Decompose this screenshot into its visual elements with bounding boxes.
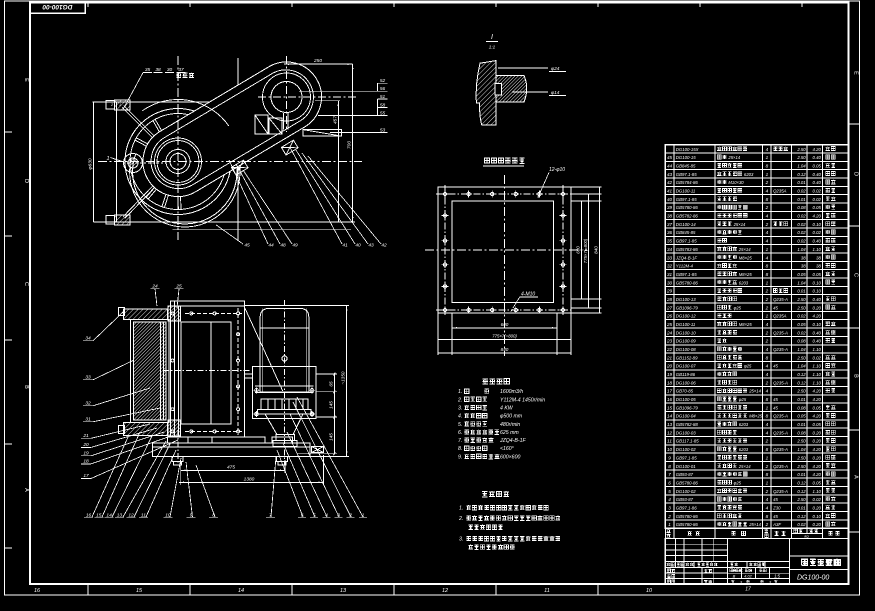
svg-text:1.04: 1.04 (797, 247, 806, 252)
svg-text:2: 2 (765, 205, 769, 210)
svg-text:26: 26 (666, 314, 673, 319)
svg-text:B: B (733, 573, 736, 578)
svg-text:0.20: 0.20 (813, 455, 822, 460)
svg-text:GB70-85: GB70-85 (676, 389, 694, 394)
svg-text:2.: 2. (458, 516, 463, 522)
svg-text:DG100-10: DG100-10 (676, 330, 696, 335)
svg-text:0.10: 0.10 (813, 322, 822, 327)
svg-text:0.12: 0.12 (797, 514, 806, 519)
svg-text:10: 10 (646, 588, 653, 594)
svg-text:φ500 mm: φ500 mm (500, 414, 523, 420)
svg-text:34: 34 (667, 247, 673, 252)
svg-text:145: 145 (328, 401, 333, 409)
svg-text:13: 13 (340, 588, 347, 594)
svg-text:2.50: 2.50 (796, 464, 806, 469)
svg-text:4-M10: 4-M10 (521, 292, 535, 298)
svg-text:0.12: 0.12 (797, 372, 806, 377)
svg-text:Q235-A: Q235-A (773, 297, 788, 302)
svg-text:0.05: 0.05 (813, 272, 822, 277)
svg-text:25×14: 25×14 (748, 389, 761, 394)
svg-text:JZQ4-B-1F: JZQ4-B-1F (499, 438, 526, 444)
svg-text:1.10: 1.10 (813, 247, 822, 252)
svg-text:0.05: 0.05 (813, 422, 822, 427)
svg-text:45: 45 (773, 497, 778, 502)
svg-text:5.: 5. (458, 422, 462, 428)
svg-text:2.50: 2.50 (796, 389, 806, 394)
svg-text:7: 7 (668, 472, 671, 477)
svg-text:1.10: 1.10 (813, 380, 822, 385)
svg-text:GB1096-79: GB1096-79 (676, 305, 699, 310)
svg-text:4: 4 (766, 255, 769, 260)
svg-text:0.01: 0.01 (797, 197, 806, 202)
svg-text:0.02: 0.02 (813, 355, 822, 360)
svg-text:1:5: 1:5 (774, 573, 780, 578)
svg-text:4: 4 (766, 372, 769, 377)
svg-text:0.20: 0.20 (813, 506, 822, 511)
svg-text:Z30: Z30 (772, 506, 781, 511)
svg-text:0.10: 0.10 (813, 280, 822, 285)
svg-text:23: 23 (666, 339, 673, 344)
svg-text:Y112M-4: Y112M-4 (676, 264, 694, 269)
svg-text:0.05: 0.05 (813, 164, 822, 169)
svg-text:3.: 3. (459, 537, 463, 543)
svg-text:Q235-A: Q235-A (773, 330, 788, 335)
svg-text:GB5783-86: GB5783-86 (676, 247, 699, 252)
svg-text:36: 36 (667, 230, 673, 235)
svg-text:2.50: 2.50 (796, 355, 806, 360)
svg-text:2.50: 2.50 (796, 497, 806, 502)
svg-text:GB5780-86: GB5780-86 (676, 280, 699, 285)
svg-text:0.05: 0.05 (797, 414, 806, 419)
svg-text:38: 38 (816, 255, 821, 260)
svg-text:1.: 1. (458, 389, 462, 395)
svg-text:DG100-00: DG100-00 (42, 3, 72, 10)
svg-text:0.02: 0.02 (797, 230, 806, 235)
svg-text:8: 8 (766, 447, 769, 452)
svg-text:3: 3 (668, 506, 671, 511)
svg-text:DG100-15X: DG100-15X (676, 147, 699, 152)
svg-text:1.04: 1.04 (797, 347, 806, 352)
svg-text:44: 44 (268, 243, 274, 249)
svg-text:4.20: 4.20 (813, 314, 822, 319)
svg-text:1: 1 (766, 314, 769, 319)
svg-text:0.20: 0.20 (813, 522, 822, 527)
svg-text:45: 45 (773, 364, 778, 369)
svg-text:0.01: 0.01 (797, 180, 806, 185)
svg-text:0.40: 0.40 (813, 239, 822, 244)
svg-text:41: 41 (342, 243, 348, 249)
svg-text:4.20: 4.20 (813, 214, 822, 219)
svg-text:42: 42 (667, 180, 673, 185)
svg-text:1: 1 (766, 247, 769, 252)
svg-text:0.02: 0.02 (797, 189, 806, 194)
svg-text:27: 27 (666, 305, 673, 310)
svg-text:17: 17 (667, 389, 673, 394)
svg-text:65: 65 (328, 381, 333, 387)
svg-text:14: 14 (667, 414, 673, 419)
svg-text:Q235-A: Q235-A (773, 380, 788, 385)
svg-text:DG100-13: DG100-13 (676, 297, 696, 302)
svg-text:41: 41 (667, 189, 673, 194)
svg-text:42: 42 (381, 243, 387, 249)
svg-text:4.02: 4.02 (744, 574, 752, 578)
svg-text:A: A (23, 488, 29, 492)
svg-text:40: 40 (667, 197, 673, 202)
svg-text:38: 38 (816, 264, 821, 269)
svg-text:DG100-03: DG100-03 (676, 430, 696, 435)
svg-text:GB5782-86: GB5782-86 (676, 214, 699, 219)
svg-text:38: 38 (801, 255, 806, 260)
svg-text:44: 44 (667, 164, 673, 169)
svg-text:M8×25: M8×25 (739, 255, 753, 260)
svg-text:GB5784-86: GB5784-86 (676, 180, 699, 185)
svg-text:GB97.1-85: GB97.1-85 (676, 272, 697, 277)
svg-text:GB5780-86: GB5780-86 (676, 480, 699, 485)
svg-text:0.12: 0.12 (797, 172, 806, 177)
svg-text:3.: 3. (458, 406, 462, 412)
svg-text:0.05: 0.05 (813, 405, 822, 410)
svg-text:0.08: 0.08 (797, 339, 806, 344)
svg-text:12: 12 (442, 588, 448, 594)
svg-text:11: 11 (544, 588, 550, 594)
svg-text:2: 2 (765, 305, 769, 310)
svg-text:2.50: 2.50 (796, 439, 806, 444)
svg-text:4: 4 (766, 239, 769, 244)
svg-text:C: C (23, 282, 29, 286)
svg-text:2: 2 (667, 514, 671, 519)
svg-text:4.20: 4.20 (813, 414, 822, 419)
svg-text:4: 4 (668, 497, 671, 502)
svg-text:15: 15 (136, 588, 143, 594)
svg-text:E: E (23, 78, 29, 82)
svg-text:1.10: 1.10 (813, 489, 822, 494)
svg-text:GB97.1-85: GB97.1-85 (676, 172, 697, 177)
svg-text:4: 4 (766, 364, 769, 369)
svg-text:16: 16 (667, 397, 673, 402)
svg-text:GB93-87: GB93-87 (676, 472, 694, 477)
svg-text:0.08: 0.08 (797, 405, 806, 410)
svg-text:0.02: 0.02 (797, 214, 806, 219)
svg-text:39: 39 (667, 205, 673, 210)
svg-text:<160°: <160° (500, 446, 514, 452)
svg-text:0.02: 0.02 (813, 197, 822, 202)
svg-text:M8×25: M8×25 (739, 322, 753, 327)
svg-text:GB845-85: GB845-85 (676, 230, 696, 235)
svg-text:2.: 2. (457, 397, 462, 403)
svg-text:38: 38 (667, 214, 673, 219)
svg-text:700: 700 (347, 141, 353, 149)
svg-text:35: 35 (667, 239, 673, 244)
svg-text:φ25: φ25 (744, 364, 752, 369)
svg-text:4: 4 (766, 214, 769, 219)
svg-text:0.40: 0.40 (813, 339, 822, 344)
svg-text:0.05: 0.05 (797, 322, 806, 327)
svg-text:6203: 6203 (739, 422, 749, 427)
svg-text:25×14: 25×14 (738, 464, 751, 469)
svg-text:GB1096-79: GB1096-79 (676, 405, 699, 410)
svg-text:8: 8 (766, 164, 769, 169)
svg-text:Q235A: Q235A (773, 189, 787, 194)
svg-text:45: 45 (773, 405, 778, 410)
svg-text:8: 8 (766, 355, 769, 360)
svg-text:4: 4 (766, 506, 769, 511)
svg-text:12: 12 (667, 430, 673, 435)
svg-text:4: 4 (766, 189, 769, 194)
svg-text:0.02: 0.02 (797, 314, 806, 319)
svg-text:28: 28 (666, 297, 673, 302)
svg-text:1: 1 (766, 405, 769, 410)
svg-text:D: D (853, 172, 859, 176)
svg-text:0.01: 0.01 (797, 289, 806, 294)
svg-text:2.50: 2.50 (796, 305, 806, 310)
svg-text:Y112M-4 1450r/min: Y112M-4 1450r/min (500, 397, 545, 403)
svg-text:0.02: 0.02 (813, 189, 822, 194)
svg-text:2: 2 (765, 489, 769, 494)
svg-text:2.50: 2.50 (796, 147, 806, 152)
svg-text:0.12: 0.12 (797, 380, 806, 385)
svg-text:GB97.1-85: GB97.1-85 (676, 197, 697, 202)
svg-text:25×14: 25×14 (727, 155, 740, 160)
svg-text:D: D (23, 179, 29, 183)
svg-text:5: 5 (668, 489, 671, 494)
svg-text:GB93-87: GB93-87 (676, 497, 694, 502)
svg-text:4.20: 4.20 (813, 147, 822, 152)
svg-text:21: 21 (666, 355, 673, 360)
svg-text:2.50: 2.50 (796, 155, 806, 160)
svg-text:DG100-04: DG100-04 (676, 414, 696, 419)
svg-text:0.40: 0.40 (813, 297, 822, 302)
svg-text:457: 457 (332, 116, 338, 124)
svg-text:18: 18 (667, 380, 673, 385)
svg-text:4: 4 (766, 230, 769, 235)
svg-text:2: 2 (765, 464, 769, 469)
svg-text:GB97.1-86: GB97.1-86 (676, 506, 697, 511)
svg-text:2: 2 (765, 180, 769, 185)
svg-text:600×600: 600×600 (500, 454, 520, 460)
svg-text:1600m3/h: 1600m3/h (500, 389, 523, 395)
svg-text:20: 20 (666, 364, 673, 369)
svg-text:14: 14 (238, 588, 244, 594)
svg-text:250: 250 (313, 58, 322, 64)
svg-text:2: 2 (765, 439, 769, 444)
svg-text:DG100-02: DG100-02 (676, 447, 696, 452)
svg-text:0.01: 0.01 (797, 397, 806, 402)
svg-text:1.04: 1.04 (797, 364, 806, 369)
svg-text:600: 600 (501, 322, 509, 327)
svg-text:4: 4 (766, 322, 769, 327)
svg-text:4.20: 4.20 (813, 472, 822, 477)
svg-text:φ24: φ24 (551, 66, 560, 72)
svg-text:25×14: 25×14 (733, 222, 746, 227)
svg-text:2: 2 (765, 222, 769, 227)
svg-text:45: 45 (667, 155, 673, 160)
svg-text:2: 2 (765, 297, 769, 302)
svg-text:DG100-00: DG100-00 (797, 575, 829, 582)
svg-text:49: 49 (292, 243, 298, 249)
svg-text:38: 38 (801, 264, 806, 269)
svg-text:DG100-11: DG100-11 (676, 322, 696, 327)
svg-text:11: 11 (667, 439, 672, 444)
svg-text:DG100-08: DG100-08 (676, 347, 696, 352)
svg-text:8: 8 (766, 514, 769, 519)
svg-text:0.10: 0.10 (813, 289, 822, 294)
svg-text:0.10: 0.10 (813, 514, 822, 519)
svg-text:M8×25: M8×25 (749, 414, 763, 419)
svg-text:GB845-85: GB845-85 (676, 164, 696, 169)
svg-text:M8×25: M8×25 (739, 272, 753, 277)
svg-text:0.12: 0.12 (797, 489, 806, 494)
svg-text:2: 2 (765, 522, 769, 527)
svg-text:0.20: 0.20 (813, 439, 822, 444)
svg-text:8: 8 (766, 264, 769, 269)
svg-text:GB97.1-85: GB97.1-85 (676, 455, 697, 460)
svg-text:1: 1 (668, 522, 671, 527)
svg-text:E: E (853, 71, 859, 75)
svg-text:40: 40 (355, 243, 361, 249)
svg-text:45: 45 (244, 243, 250, 249)
svg-text:7.: 7. (458, 438, 462, 444)
svg-text:φ14: φ14 (551, 90, 560, 96)
svg-text:0.05: 0.05 (797, 272, 806, 277)
svg-text:45: 45 (773, 305, 778, 310)
svg-text:0.40: 0.40 (813, 180, 822, 185)
svg-text:32: 32 (667, 264, 673, 269)
svg-text:4.: 4. (458, 414, 462, 420)
svg-text:1.04: 1.04 (797, 280, 806, 285)
svg-text:0.05: 0.05 (813, 480, 822, 485)
svg-text:775×7(=800): 775×7(=800) (583, 238, 588, 263)
svg-text:Q235-A: Q235-A (773, 489, 788, 494)
svg-text:840: 840 (501, 347, 509, 352)
svg-text:1.04: 1.04 (797, 164, 806, 169)
svg-text:15: 15 (667, 405, 673, 410)
svg-text:8: 8 (766, 197, 769, 202)
svg-text:0.02: 0.02 (797, 522, 806, 527)
svg-text:4.20: 4.20 (813, 464, 822, 469)
svg-text:GB5780-86: GB5780-86 (676, 514, 699, 519)
svg-text:4: 4 (766, 347, 769, 352)
svg-text:0.12: 0.12 (797, 480, 806, 485)
svg-text:DG100-14: DG100-14 (676, 222, 696, 227)
svg-text:I: I (491, 34, 493, 41)
svg-text:4.20: 4.20 (813, 389, 822, 394)
svg-text:43: 43 (667, 172, 673, 177)
svg-text:GB5780-86: GB5780-86 (676, 522, 699, 527)
svg-text:0.01: 0.01 (797, 472, 806, 477)
svg-text:M10×30: M10×30 (728, 180, 744, 185)
svg-text:1:1: 1:1 (489, 45, 496, 50)
svg-text:12-φ10: 12-φ10 (549, 167, 565, 173)
svg-text:0.40: 0.40 (813, 330, 822, 335)
svg-text:45: 45 (773, 397, 778, 402)
svg-text:8: 8 (668, 464, 671, 469)
svg-text:9: 9 (668, 455, 671, 460)
svg-text:1.: 1. (459, 506, 463, 512)
svg-text:4.20: 4.20 (813, 397, 822, 402)
svg-text:16: 16 (34, 588, 41, 594)
svg-text:4: 4 (766, 497, 769, 502)
svg-text:600: 600 (576, 246, 581, 254)
svg-text:4.20: 4.20 (813, 447, 822, 452)
svg-text:C: C (853, 273, 859, 277)
svg-text:4: 4 (766, 389, 769, 394)
svg-text:2: 2 (765, 330, 769, 335)
svg-text:43: 43 (368, 243, 374, 249)
svg-text:1: 1 (766, 455, 769, 460)
svg-text:1: 1 (766, 480, 769, 485)
svg-text:1.10: 1.10 (813, 372, 822, 377)
svg-text:22: 22 (666, 347, 673, 352)
svg-text:0.02: 0.02 (813, 497, 822, 502)
svg-text:0.02: 0.02 (797, 239, 806, 244)
svg-text:8: 8 (766, 472, 769, 477)
svg-text:GB5782-88: GB5782-88 (676, 422, 699, 427)
svg-text:33: 33 (667, 255, 673, 260)
svg-text:10: 10 (667, 447, 673, 452)
svg-text:0.02: 0.02 (813, 230, 822, 235)
svg-text:DG100-01: DG100-01 (676, 464, 696, 469)
svg-text:145: 145 (328, 433, 333, 441)
svg-text:GB117.1-85: GB117.1-85 (676, 439, 699, 444)
svg-text:JZQ4-B-1F: JZQ4-B-1F (675, 255, 698, 260)
svg-text:0.01: 0.01 (797, 506, 806, 511)
svg-text:1: 1 (119, 103, 121, 107)
svg-text:625 mm: 625 mm (500, 430, 519, 436)
svg-text:DG100-09: DG100-09 (676, 339, 696, 344)
svg-text:6203: 6203 (744, 172, 754, 177)
svg-text:6: 6 (668, 480, 671, 485)
svg-text:8.: 8. (458, 446, 462, 452)
svg-text:GB5780-86: GB5780-86 (676, 205, 699, 210)
svg-text:~1350: ~1350 (341, 371, 346, 384)
svg-text:Q235-A: Q235-A (773, 464, 788, 469)
svg-text:17: 17 (745, 587, 751, 593)
svg-text:29: 29 (666, 289, 673, 294)
svg-text:2: 2 (765, 339, 769, 344)
svg-text:4 KW: 4 KW (500, 406, 514, 412)
svg-text:DG100-07: DG100-07 (676, 364, 696, 369)
svg-text:31: 31 (667, 272, 673, 277)
svg-text:48: 48 (280, 243, 286, 249)
svg-text:2.50: 2.50 (796, 297, 806, 302)
svg-text:30: 30 (667, 280, 673, 285)
svg-text:φ25: φ25 (739, 397, 747, 402)
svg-text:DG100-15: DG100-15 (676, 155, 696, 160)
svg-text:25×14: 25×14 (748, 522, 761, 527)
svg-text:45: 45 (773, 514, 778, 519)
svg-text:GB1152-89: GB1152-89 (676, 355, 698, 360)
svg-text:2: 2 (765, 380, 769, 385)
svg-text:A: A (853, 475, 859, 479)
svg-text:B: B (23, 385, 29, 389)
svg-text:DG100-02: DG100-02 (676, 489, 696, 494)
svg-text:0.08: 0.08 (797, 430, 806, 435)
svg-text:4: 4 (766, 430, 769, 435)
svg-text:1.10: 1.10 (813, 347, 822, 352)
svg-text:A3F: A3F (772, 522, 781, 527)
svg-text:φ25: φ25 (734, 305, 742, 310)
svg-text:Q235A: Q235A (773, 314, 787, 319)
svg-text:6.: 6. (458, 430, 462, 436)
svg-text:24: 24 (666, 330, 673, 335)
svg-text:GB119-86: GB119-86 (676, 372, 696, 377)
svg-text:DG100-11: DG100-11 (676, 189, 696, 194)
svg-text:DG100-12: DG100-12 (676, 314, 696, 319)
svg-text:13: 13 (667, 422, 673, 427)
svg-text:φ25: φ25 (734, 480, 742, 485)
svg-text:Q235-A: Q235-A (773, 447, 788, 452)
svg-text:9.: 9. (458, 454, 462, 460)
